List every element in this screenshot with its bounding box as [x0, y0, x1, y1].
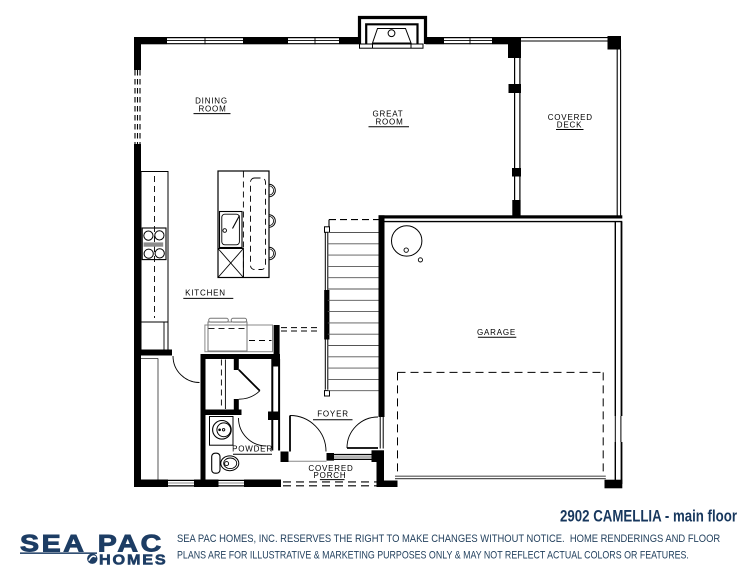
svg-text:PORCH: PORCH	[314, 471, 347, 480]
svg-text:ROOM: ROOM	[375, 117, 403, 126]
svg-text:FOYER: FOYER	[317, 410, 349, 419]
svg-text:GARAGE: GARAGE	[477, 328, 516, 337]
svg-text:KITCHEN: KITCHEN	[185, 289, 226, 298]
svg-text:SEA PAC HOMES, INC. RESERVES T: SEA PAC HOMES, INC. RESERVES THE RIGHT T…	[177, 533, 721, 545]
svg-text:POWDER: POWDER	[232, 445, 273, 454]
svg-text:2902 CAMELLIA - main floor: 2902 CAMELLIA - main floor	[560, 507, 737, 526]
svg-text:ROOM: ROOM	[198, 104, 226, 113]
svg-text:DECK: DECK	[557, 121, 582, 130]
svg-text:HOMES: HOMES	[99, 552, 168, 568]
svg-text:PLANS ARE FOR ILLUSTRATIVE & M: PLANS ARE FOR ILLUSTRATIVE & MARKETING P…	[177, 549, 689, 561]
